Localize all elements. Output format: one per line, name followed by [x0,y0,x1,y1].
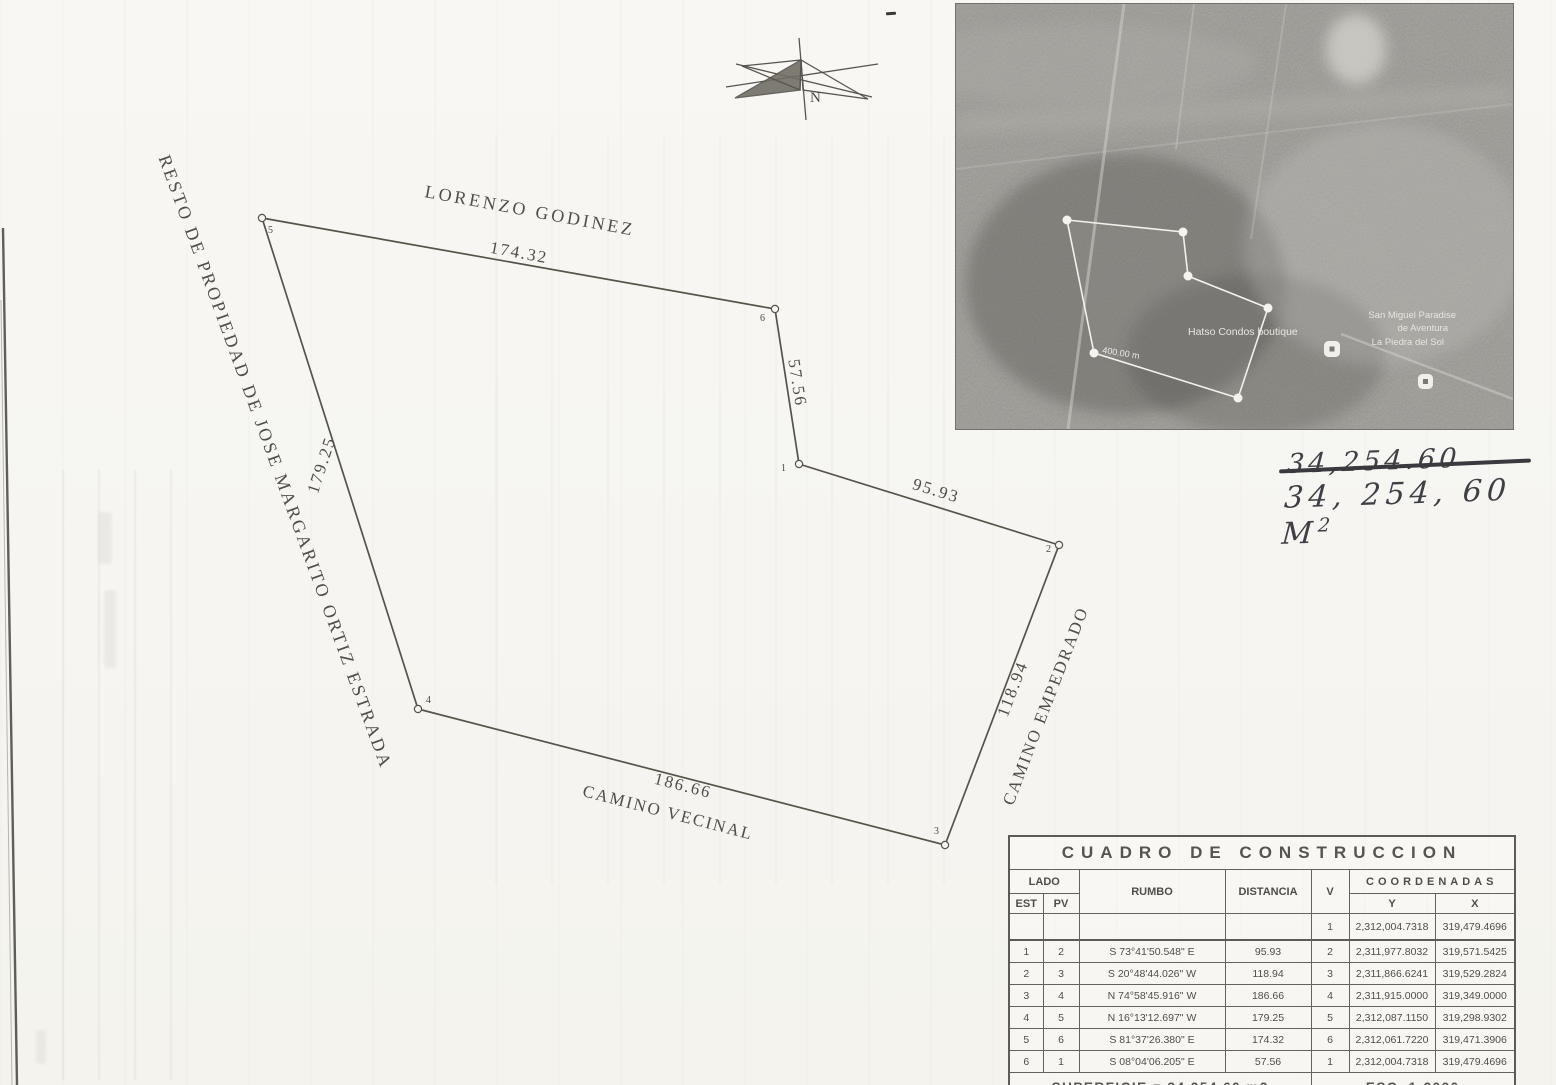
footer-escala: ESC. 1:2000 [1311,1073,1515,1085]
cell-pv: 4 [1043,985,1079,1007]
cell-pv: 3 [1043,963,1079,985]
table-row: 34N 74°58'45.916" W186.6642,311,915.0000… [1009,985,1515,1007]
cell-y: 2,311,977.8032 [1349,940,1435,963]
table-row: 12,312,004.7318319,479.4696 [1009,914,1515,941]
header-rumbo: RUMBO [1079,870,1225,914]
vertex-label-1: 1 [781,463,786,474]
table-row: 12S 73°41'50.548" E95.9322,311,977.80323… [1009,940,1515,963]
cuadro-de-construccion: CUADRO DE CONSTRUCCION LADO RUMBO DISTAN… [1008,835,1516,1085]
cell-x: 319,471.3906 [1435,1029,1515,1051]
cell-rumbo [1079,914,1225,941]
header-v: V [1311,870,1349,914]
cell-v: 2 [1311,940,1349,963]
vertex-label-6: 6 [760,313,765,324]
north-arrow-icon [726,38,878,120]
cell-est: 5 [1009,1029,1043,1051]
cell-rumbo: S 81°37'26.380" E [1079,1029,1225,1051]
header-distancia: DISTANCIA [1225,870,1311,914]
cell-x: 319,529.2824 [1435,963,1515,985]
cell-pv: 5 [1043,1007,1079,1029]
cell-pv: 1 [1043,1051,1079,1073]
cell-x: 319,479.4696 [1435,914,1515,941]
vertex-label-4: 4 [426,695,431,706]
cell-y: 2,312,004.7318 [1349,1051,1435,1073]
header-coordenadas: COORDENADAS [1349,870,1515,894]
cell-v: 3 [1311,963,1349,985]
cell-y: 2,311,915.0000 [1349,985,1435,1007]
cell-v: 1 [1311,914,1349,941]
cell-est [1009,914,1043,941]
handwritten-area-note: 34, 254, 60 M2 [1281,471,1556,552]
cell-y: 2,312,087.1150 [1349,1007,1435,1029]
north-arrow-label: N [810,90,821,106]
cell-y: 2,311,866.6241 [1349,963,1435,985]
footer-superficie: SUPERFICIE = 34,254.60 m2 [1009,1073,1311,1085]
cell-distancia: 186.66 [1225,985,1311,1007]
table-row: 23S 20°48'44.026" W118.9432,311,866.6241… [1009,963,1515,985]
handwritten-area-unit: M [1281,516,1319,552]
cell-v: 5 [1311,1007,1349,1029]
cell-est: 6 [1009,1051,1043,1073]
cell-y: 2,312,004.7318 [1349,914,1435,941]
header-pv: PV [1043,894,1079,914]
scanned-survey-page: N RESTO DE PROPIEDAD DE JOSE MARGARITO O… [0,0,1556,1085]
header-y: Y [1349,894,1435,914]
cell-pv: 2 [1043,940,1079,963]
cell-distancia: 179.25 [1225,1007,1311,1029]
cell-x: 319,479.4696 [1435,1051,1515,1073]
cell-x: 319,571.5425 [1435,940,1515,963]
cell-pv [1043,914,1079,941]
table-title: CUADRO DE CONSTRUCCION [1009,836,1515,870]
table-row: 45N 16°13'12.697" W179.2552,312,087.1150… [1009,1007,1515,1029]
cell-rumbo: S 08°04'06.205" E [1079,1051,1225,1073]
cell-v: 1 [1311,1051,1349,1073]
cell-est: 4 [1009,1007,1043,1029]
cell-rumbo: S 20°48'44.026" W [1079,963,1225,985]
cell-v: 4 [1311,985,1349,1007]
cell-est: 2 [1009,963,1043,985]
vertex-label-2: 2 [1046,544,1051,555]
vertex-label-5: 5 [268,225,273,236]
cell-distancia: 57.56 [1225,1051,1311,1073]
cell-v: 6 [1311,1029,1349,1051]
cell-y: 2,312,061.7220 [1349,1029,1435,1051]
cell-distancia [1225,914,1311,941]
cell-est: 1 [1009,940,1043,963]
table-row: 56S 81°37'26.380" E174.3262,312,061.7220… [1009,1029,1515,1051]
header-x: X [1435,894,1515,914]
construction-table: CUADRO DE CONSTRUCCION LADO RUMBO DISTAN… [1008,835,1516,1085]
cell-distancia: 174.32 [1225,1029,1311,1051]
cell-est: 3 [1009,985,1043,1007]
header-lado: LADO [1009,870,1079,894]
cell-x: 319,298.9302 [1435,1007,1515,1029]
cell-x: 319,349.0000 [1435,985,1515,1007]
handwritten-area-unit-exp: 2 [1317,514,1336,537]
handwritten-area-value: 34, 254, 60 [1283,473,1512,516]
cell-rumbo: S 73°41'50.548" E [1079,940,1225,963]
table-row: 61S 08°04'06.205" E57.5612,312,004.73183… [1009,1051,1515,1073]
cell-distancia: 95.93 [1225,940,1311,963]
cell-rumbo: N 16°13'12.697" W [1079,1007,1225,1029]
cell-rumbo: N 74°58'45.916" W [1079,985,1225,1007]
vertex-label-3: 3 [934,826,939,837]
cell-distancia: 118.94 [1225,963,1311,985]
cell-pv: 6 [1043,1029,1079,1051]
header-est: EST [1009,894,1043,914]
